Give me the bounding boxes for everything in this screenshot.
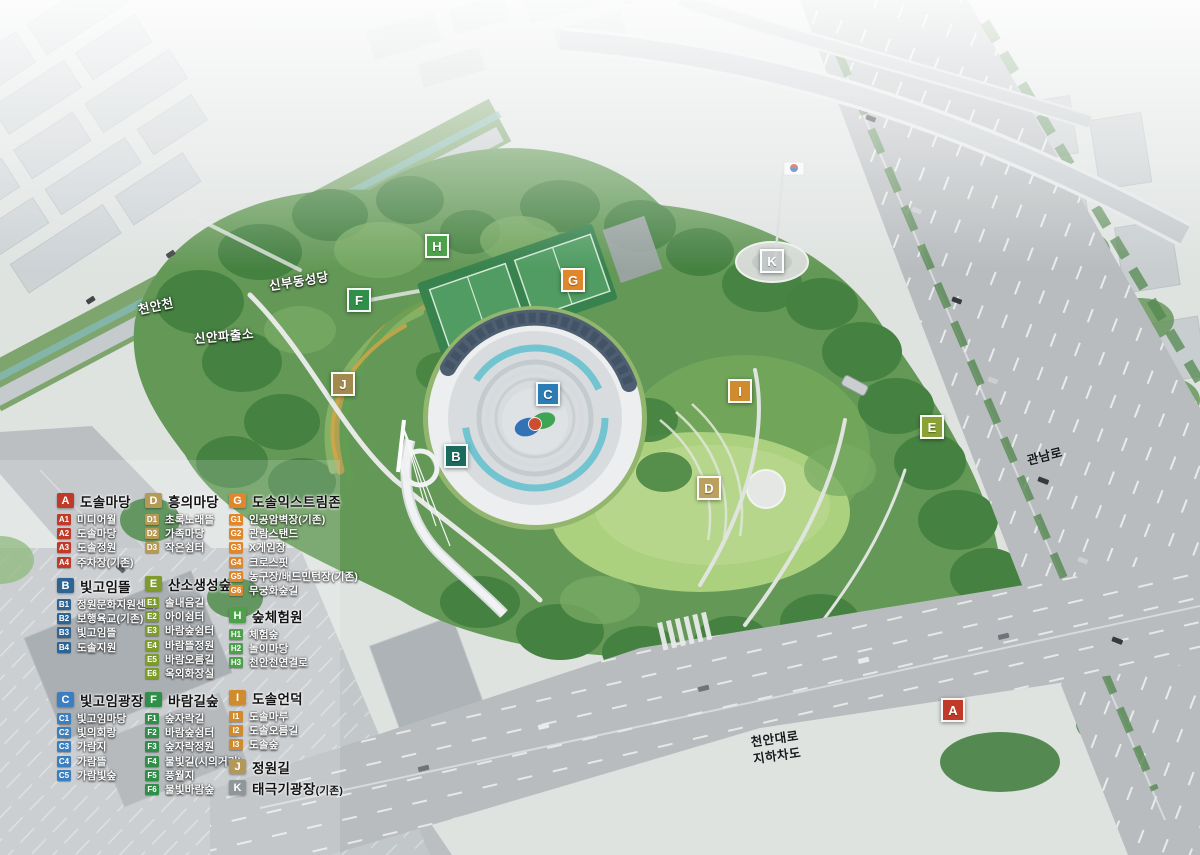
legend-header-G: G도솔익스트림존 xyxy=(229,492,358,509)
legend-chip-A2: A2 xyxy=(57,528,71,539)
legend-item-E3: E3바람숲쉼터 xyxy=(145,624,232,638)
legend-label-E1: 솔내음길 xyxy=(165,595,204,610)
legend-item-C5: C5가람빛숲 xyxy=(57,768,144,782)
legend-item-F5: F5풍월지 xyxy=(145,768,241,782)
legend-badge-B: B xyxy=(57,578,74,593)
legend-label-F6: 물빛바람숲 xyxy=(165,782,214,797)
legend-header-A: A도솔마당 xyxy=(57,492,134,509)
legend-label-E3: 바람숲쉼터 xyxy=(165,623,214,638)
legend-chip-G4: G4 xyxy=(229,557,243,568)
legend-item-C2: C2빛의회랑 xyxy=(57,725,144,739)
legend-title-I: 도솔언덕 xyxy=(252,688,303,708)
legend-item-B1: B1정원문화지원센터 xyxy=(57,597,156,611)
legend-item-I1: I1도솔마루 xyxy=(229,709,303,723)
legend-chip-C2: C2 xyxy=(57,727,71,738)
legend-header-J: J정원길 xyxy=(229,758,290,775)
legend-label-B2: 보행육교(기존) xyxy=(77,611,144,626)
legend-item-H2: H2놀이마당 xyxy=(229,641,308,655)
legend-label-E2: 아이쉼터 xyxy=(165,609,204,624)
legend-title-B: 빛고임뜰 xyxy=(80,576,131,596)
legend-title-D: 흥의마당 xyxy=(168,491,219,511)
legend-chip-C4: C4 xyxy=(57,756,71,767)
legend-label-A2: 도솔마당 xyxy=(77,526,116,541)
legend-chip-F4: F4 xyxy=(145,756,159,767)
legend-chip-C3: C3 xyxy=(57,741,71,752)
legend-chip-E1: E1 xyxy=(145,597,159,608)
legend-badge-D: D xyxy=(145,493,162,508)
legend-label-H3: 천안천연결로 xyxy=(249,655,308,670)
legend-label-C5: 가람빛숲 xyxy=(77,768,116,783)
legend-item-E5: E5바람오름길 xyxy=(145,652,232,666)
legend-header-I: I도솔언덕 xyxy=(229,689,303,706)
legend-label-B4: 도솔지원 xyxy=(77,640,116,655)
map-marker-E: E xyxy=(920,415,944,439)
legend-section-H: H숲체험원H1체험숲H2놀이마당H3천안천연결로 xyxy=(229,607,308,670)
legend-item-B2: B2보행육교(기존) xyxy=(57,611,156,625)
legend-item-B3: B3빛고임뜰 xyxy=(57,626,156,640)
legend-section-A: A도솔마당A1미디어월A2도솔마당A3도솔정원A4주차장(기존) xyxy=(57,492,134,569)
legend-section-I: I도솔언덕I1도솔마루I2도솔오름길I3도솔숲 xyxy=(229,689,303,752)
legend-chip-B4: B4 xyxy=(57,642,71,653)
legend-chip-B1: B1 xyxy=(57,599,71,610)
legend-item-A1: A1미디어월 xyxy=(57,512,134,526)
legend-label-E4: 바람뜰정원 xyxy=(165,638,214,653)
legend-section-F: F바람길숲F1숲자락길F2바람숲쉼터F3숲자락정원F4물빛길(시의거리)F5풍월… xyxy=(145,691,241,797)
legend-header-K: K태극기광장(기존) xyxy=(229,779,343,796)
legend-label-I2: 도솔오름길 xyxy=(249,723,298,738)
map-marker-B: B xyxy=(444,444,468,468)
legend-title-K: 태극기광장(기존) xyxy=(252,778,343,798)
legend-chip-F3: F3 xyxy=(145,741,159,752)
legend-section-C: C빛고임광장C1빛고임마당C2빛의회랑C3가람지C4가람뜰C5가람빛숲 xyxy=(57,691,144,782)
legend-item-A4: A4주차장(기존) xyxy=(57,555,134,569)
legend-chip-C1: C1 xyxy=(57,713,71,724)
legend-item-E4: E4바람뜰정원 xyxy=(145,638,232,652)
legend-item-E2: E2아이쉼터 xyxy=(145,609,232,623)
map-marker-J: J xyxy=(331,372,355,396)
legend-item-I3: I3도솔숲 xyxy=(229,738,303,752)
legend-header-B: B빛고임뜰 xyxy=(57,577,156,594)
legend-title-G: 도솔익스트림존 xyxy=(252,491,341,511)
legend-chip-H1: H1 xyxy=(229,629,243,640)
legend-label-G5: 농구장/배드민턴장(기존) xyxy=(249,569,358,584)
legend-badge-E: E xyxy=(145,576,162,591)
legend-chip-C5: C5 xyxy=(57,770,71,781)
legend-label-D3: 작은쉼터 xyxy=(165,540,204,555)
legend-item-D1: D1초록노래뜰 xyxy=(145,512,219,526)
legend-label-A1: 미디어월 xyxy=(77,512,116,527)
legend-chip-G2: G2 xyxy=(229,528,243,539)
legend-chip-D3: D3 xyxy=(145,542,159,553)
legend-chip-B3: B3 xyxy=(57,627,71,638)
legend-chip-F6: F6 xyxy=(145,784,159,795)
legend-chip-I1: I1 xyxy=(229,711,243,722)
legend-item-G1: G1인공암벽장(기존) xyxy=(229,512,358,526)
legend-label-G6: 무궁화숲길 xyxy=(249,583,298,598)
legend-label-E5: 바람오름길 xyxy=(165,652,214,667)
legend-item-B4: B4도솔지원 xyxy=(57,640,156,654)
legend-title-C: 빛고임광장 xyxy=(80,690,144,710)
legend-label-I1: 도솔마루 xyxy=(249,709,288,724)
legend-chip-E4: E4 xyxy=(145,640,159,651)
legend-badge-H: H xyxy=(229,608,246,623)
legend-chip-H3: H3 xyxy=(229,657,243,668)
legend-label-A4: 주차장(기존) xyxy=(77,555,134,570)
legend-label-C3: 가람지 xyxy=(77,739,107,754)
legend-badge-J: J xyxy=(229,759,246,774)
legend-chip-A1: A1 xyxy=(57,514,71,525)
legend-title-F: 바람길숲 xyxy=(168,690,219,710)
legend-chip-D2: D2 xyxy=(145,528,159,539)
legend-header-C: C빛고임광장 xyxy=(57,691,144,708)
legend-chip-F1: F1 xyxy=(145,713,159,724)
legend-label-H1: 체험숲 xyxy=(249,627,279,642)
legend-item-F1: F1숲자락길 xyxy=(145,711,241,725)
legend-section-B: B빛고임뜰B1정원문화지원센터B2보행육교(기존)B3빛고임뜰B4도솔지원 xyxy=(57,577,156,654)
legend-badge-A: A xyxy=(57,493,74,508)
legend-chip-A4: A4 xyxy=(57,557,71,568)
legend-chip-A3: A3 xyxy=(57,542,71,553)
legend-chip-G6: G6 xyxy=(229,585,243,596)
legend-section-K: K태극기광장(기존) xyxy=(229,779,343,799)
legend-chip-E6: E6 xyxy=(145,668,159,679)
legend-item-F6: F6물빛바람숲 xyxy=(145,782,241,796)
legend-header-E: E산소생성숲 xyxy=(145,575,232,592)
legend-title-J: 정원길 xyxy=(252,757,290,777)
legend-badge-C: C xyxy=(57,692,74,707)
legend-chip-D1: D1 xyxy=(145,514,159,525)
legend-section-G: G도솔익스트림존G1인공암벽장(기존)G2관람스탠드G3X게임장G4크로스핏G5… xyxy=(229,492,358,598)
map-marker-F: F xyxy=(347,288,371,312)
legend-item-C1: C1빛고임마당 xyxy=(57,711,144,725)
map-marker-K: K xyxy=(760,249,784,273)
legend-item-F2: F2바람숲쉼터 xyxy=(145,725,241,739)
legend-badge-I: I xyxy=(229,690,246,705)
legend-header-H: H숲체험원 xyxy=(229,607,308,624)
legend-item-F4: F4물빛길(시의거리) xyxy=(145,754,241,768)
legend-label-B3: 빛고임뜰 xyxy=(77,625,116,640)
legend-label-G1: 인공암벽장(기존) xyxy=(249,512,325,527)
legend-label-E6: 옥외화장실 xyxy=(165,666,214,681)
legend-header-D: D흥의마당 xyxy=(145,492,219,509)
legend-label-D1: 초록노래뜰 xyxy=(165,512,214,527)
legend-item-H3: H3천안천연결로 xyxy=(229,656,308,670)
legend-label-F5: 풍월지 xyxy=(165,768,195,783)
legend-title-E: 산소생성숲 xyxy=(168,574,232,594)
legend-item-C4: C4가람뜰 xyxy=(57,754,144,768)
legend-chip-H2: H2 xyxy=(229,643,243,654)
legend-item-D3: D3작은쉼터 xyxy=(145,541,219,555)
legend-title-H: 숲체험원 xyxy=(252,606,303,626)
legend-chip-E3: E3 xyxy=(145,625,159,636)
legend-item-A2: A2도솔마당 xyxy=(57,526,134,540)
legend-item-H1: H1체험숲 xyxy=(229,627,308,641)
legend-label-C4: 가람뜰 xyxy=(77,754,107,769)
legend-label-D2: 가족마당 xyxy=(165,526,204,541)
legend-chip-B2: B2 xyxy=(57,613,71,624)
legend-section-D: D흥의마당D1초록노래뜰D2가족마당D3작은쉼터 xyxy=(145,492,219,555)
legend-item-I2: I2도솔오름길 xyxy=(229,723,303,737)
legend-label-C1: 빛고임마당 xyxy=(77,711,126,726)
legend-item-G5: G5농구장/배드민턴장(기존) xyxy=(229,569,358,583)
legend-item-F3: F3숲자락정원 xyxy=(145,740,241,754)
legend-item-G3: G3X게임장 xyxy=(229,541,358,555)
legend-label-C2: 빛의회랑 xyxy=(77,725,116,740)
legend-item-D2: D2가족마당 xyxy=(145,526,219,540)
legend-label-F3: 숲자락정원 xyxy=(165,739,214,754)
legend-chip-I3: I3 xyxy=(229,739,243,750)
legend-item-A3: A3도솔정원 xyxy=(57,541,134,555)
legend-chip-E2: E2 xyxy=(145,611,159,622)
legend-badge-K: K xyxy=(229,780,246,795)
legend-chip-F2: F2 xyxy=(145,727,159,738)
legend-chip-G3: G3 xyxy=(229,542,243,553)
legend-chip-I2: I2 xyxy=(229,725,243,736)
legend-section-E: E산소생성숲E1솔내음길E2아이쉼터E3바람숲쉼터E4바람뜰정원E5바람오름길E… xyxy=(145,575,232,681)
legend-section-J: J정원길 xyxy=(229,758,290,778)
legend-label-I3: 도솔숲 xyxy=(249,737,279,752)
legend-label-H2: 놀이마당 xyxy=(249,641,288,656)
map-marker-D: D xyxy=(697,476,721,500)
legend-header-F: F바람길숲 xyxy=(145,691,241,708)
legend-label-F2: 바람숲쉼터 xyxy=(165,725,214,740)
legend-chip-G5: G5 xyxy=(229,571,243,582)
legend-chip-E5: E5 xyxy=(145,654,159,665)
legend-title-A: 도솔마당 xyxy=(80,491,131,511)
legend-chip-G1: G1 xyxy=(229,514,243,525)
map-marker-C: C xyxy=(536,382,560,406)
legend-item-G6: G6무궁화숲길 xyxy=(229,583,358,597)
legend-label-F1: 숲자락길 xyxy=(165,711,204,726)
legend-title-suffix-K: (기존) xyxy=(316,785,344,797)
map-marker-I: I xyxy=(728,379,752,403)
legend-item-E1: E1솔내음길 xyxy=(145,595,232,609)
legend-chip-F5: F5 xyxy=(145,770,159,781)
legend-item-E6: E6옥외화장실 xyxy=(145,666,232,680)
legend-label-A3: 도솔정원 xyxy=(77,540,116,555)
map-marker-A: A xyxy=(941,698,965,722)
map-marker-H: H xyxy=(425,234,449,258)
aerial-masterplan-rendering: 천안천신부동성당신안파출소관남로천안대로 지하차도 HFGKJBCIEDA A도… xyxy=(0,0,1200,855)
legend-badge-G: G xyxy=(229,493,246,508)
legend-badge-F: F xyxy=(145,692,162,707)
legend-label-G3: X게임장 xyxy=(249,540,286,555)
legend-item-G2: G2관람스탠드 xyxy=(229,526,358,540)
map-marker-G: G xyxy=(561,268,585,292)
legend-item-C3: C3가람지 xyxy=(57,740,144,754)
legend-item-G4: G4크로스핏 xyxy=(229,555,358,569)
legend-label-G2: 관람스탠드 xyxy=(249,526,298,541)
legend-label-G4: 크로스핏 xyxy=(249,555,288,570)
